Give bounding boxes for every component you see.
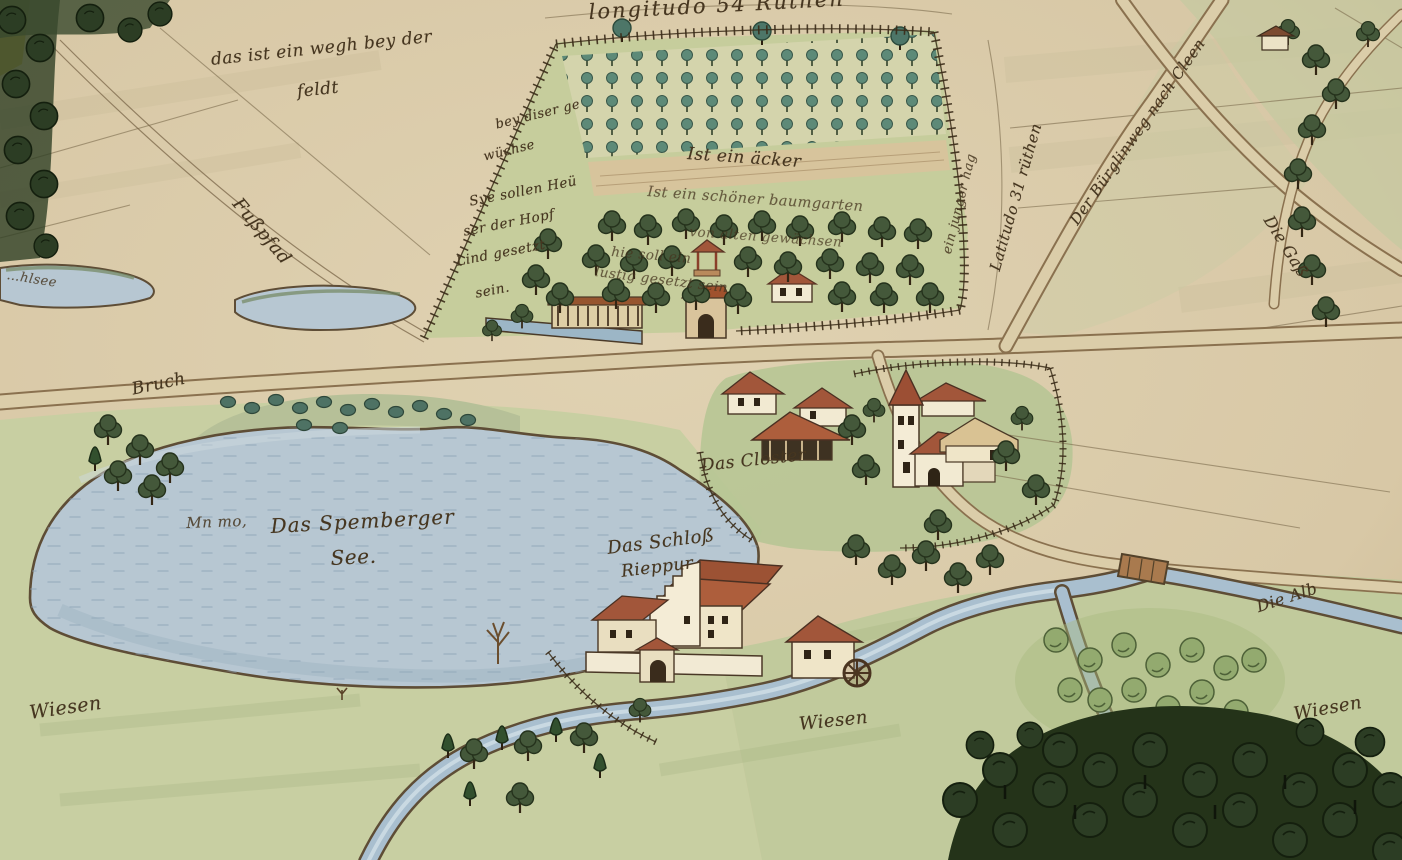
map-canvas — [0, 0, 1402, 860]
historic-map: longitudo 54 Rüthen das ist ein wegh bey… — [0, 0, 1402, 860]
